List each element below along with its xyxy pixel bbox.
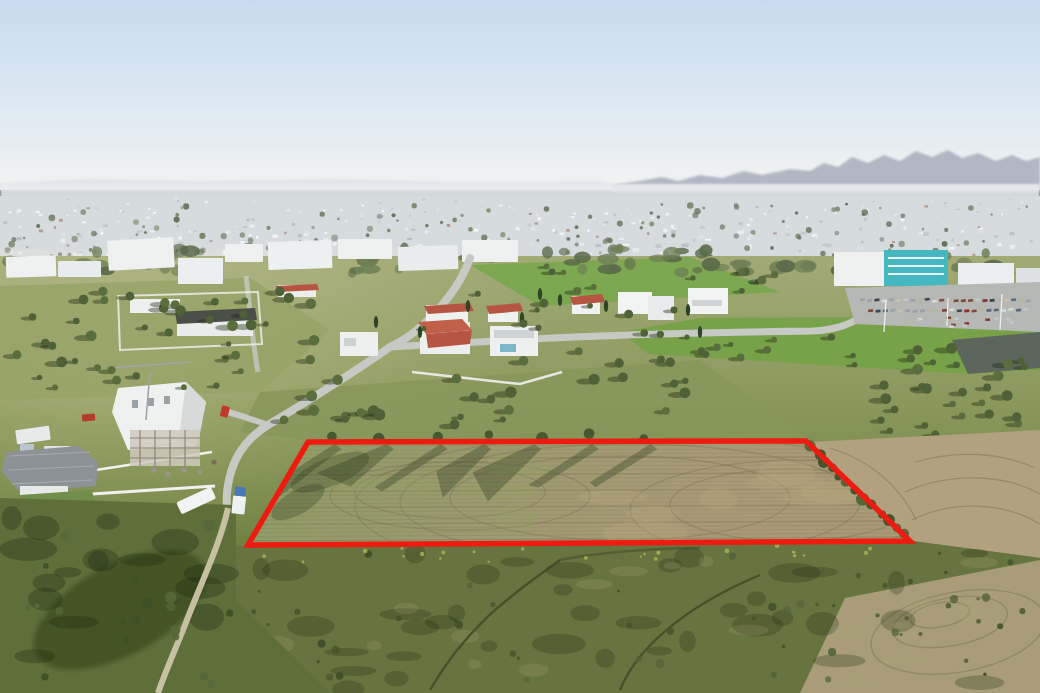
car bbox=[927, 309, 932, 312]
olive-tree bbox=[983, 384, 991, 392]
dark-mottle bbox=[595, 649, 614, 668]
car bbox=[932, 300, 937, 303]
building-speckle bbox=[835, 212, 837, 214]
yellow-bush bbox=[441, 551, 445, 555]
building-speckle bbox=[571, 216, 575, 218]
building-speckle bbox=[516, 227, 520, 230]
dark-mottle bbox=[747, 591, 766, 606]
building-speckle bbox=[188, 231, 191, 233]
building-speckle bbox=[854, 227, 858, 229]
roof-speckle bbox=[67, 245, 70, 247]
building-speckle bbox=[629, 213, 632, 215]
city-tree bbox=[649, 221, 654, 226]
building-speckle bbox=[234, 226, 238, 228]
city-tree bbox=[133, 219, 139, 225]
olive-tree bbox=[306, 299, 317, 310]
olive-tree bbox=[561, 270, 566, 275]
slope-bush bbox=[132, 616, 141, 625]
scaffolding bbox=[130, 430, 200, 466]
yellow-bush bbox=[725, 549, 730, 554]
dark-mottle bbox=[0, 538, 57, 561]
olive-tree bbox=[342, 416, 349, 423]
car bbox=[1004, 299, 1009, 302]
building-speckle bbox=[39, 214, 43, 216]
building-speckle bbox=[127, 203, 129, 204]
building-speckle bbox=[225, 230, 230, 233]
olive-tree bbox=[79, 295, 89, 305]
olive-tree bbox=[284, 293, 294, 303]
car bbox=[985, 319, 990, 321]
building-speckle bbox=[117, 220, 119, 223]
building-speckle bbox=[605, 212, 608, 214]
building-speckle bbox=[103, 225, 108, 227]
building-speckle bbox=[994, 236, 998, 238]
olive-tree bbox=[930, 359, 936, 365]
building-speckle bbox=[563, 209, 566, 210]
building-speckle bbox=[78, 206, 80, 207]
city-tree bbox=[36, 224, 40, 228]
building-speckle bbox=[944, 203, 946, 205]
olive-tree bbox=[907, 354, 915, 362]
dark-mottle bbox=[647, 646, 672, 655]
building-speckle bbox=[270, 229, 273, 231]
building-speckle bbox=[417, 244, 423, 246]
olive-tree bbox=[912, 364, 923, 375]
olive-tree bbox=[280, 416, 289, 425]
scrub-bush bbox=[667, 628, 674, 635]
building-speckle bbox=[619, 238, 624, 240]
city-tree bbox=[734, 203, 739, 208]
olive-tree bbox=[640, 329, 648, 337]
building-speckle bbox=[632, 248, 639, 252]
city-tree bbox=[588, 214, 592, 218]
olive-tree bbox=[52, 384, 58, 390]
building-speckle bbox=[409, 215, 411, 217]
tree-cluster bbox=[92, 246, 102, 257]
scrub-bush bbox=[453, 618, 457, 622]
car bbox=[957, 309, 962, 312]
dark-mottle bbox=[425, 615, 457, 630]
car bbox=[954, 318, 959, 320]
car bbox=[860, 298, 865, 301]
building-speckle bbox=[861, 241, 864, 243]
building-speckle bbox=[923, 232, 928, 236]
building-speckle bbox=[361, 212, 363, 214]
building-speckle bbox=[900, 219, 904, 222]
olive-tree bbox=[133, 372, 140, 379]
building-speckle bbox=[826, 243, 832, 247]
building-speckle bbox=[425, 230, 427, 233]
building-speckle bbox=[747, 237, 750, 240]
building-speckle bbox=[936, 239, 940, 241]
city-tree bbox=[468, 227, 473, 232]
slope-bush bbox=[204, 520, 216, 532]
roof-speckle bbox=[957, 244, 960, 246]
aerial-photo-stage bbox=[0, 0, 1040, 693]
roof-speckle bbox=[924, 205, 928, 207]
scrub-bush bbox=[950, 595, 958, 603]
olive-tree bbox=[958, 388, 967, 397]
building-speckle bbox=[978, 231, 983, 233]
olive-tree bbox=[125, 292, 134, 301]
car bbox=[1016, 309, 1021, 312]
city-tree bbox=[337, 218, 340, 221]
building-speckle bbox=[573, 213, 576, 214]
olive-tree bbox=[918, 383, 926, 391]
olive-tree bbox=[519, 356, 529, 366]
scrub-bush bbox=[636, 656, 643, 663]
olive-tree bbox=[993, 371, 1003, 381]
building-speckle bbox=[552, 229, 554, 232]
building-speckle bbox=[177, 200, 180, 202]
olive-tree bbox=[670, 379, 678, 387]
building-speckle bbox=[119, 210, 121, 212]
city-tree bbox=[91, 231, 97, 237]
scrub-bush bbox=[510, 651, 517, 658]
olive-tree bbox=[959, 413, 966, 420]
olive-tree bbox=[713, 344, 720, 351]
city-tree bbox=[692, 212, 698, 218]
city-tree bbox=[968, 205, 974, 211]
olive-tree bbox=[37, 375, 42, 380]
light-mottle bbox=[394, 602, 419, 614]
building-speckle bbox=[859, 228, 862, 231]
car bbox=[1009, 321, 1014, 323]
slope-bush bbox=[120, 620, 126, 626]
scrub-bush bbox=[317, 639, 325, 647]
tan-mottle bbox=[782, 487, 862, 506]
roof-speckle bbox=[535, 222, 538, 224]
building-speckle bbox=[560, 232, 565, 235]
building-speckle bbox=[903, 226, 906, 229]
tree-cluster bbox=[597, 254, 619, 264]
building-speckle bbox=[288, 207, 291, 208]
building-speckle bbox=[455, 201, 458, 203]
city-tree bbox=[798, 236, 802, 240]
building-speckle bbox=[148, 208, 150, 210]
olive-tree bbox=[535, 307, 540, 312]
car bbox=[942, 309, 947, 312]
scrub-bush bbox=[524, 677, 529, 682]
building-speckle bbox=[685, 201, 687, 202]
car bbox=[972, 309, 977, 312]
olive-tree bbox=[94, 364, 101, 371]
olive-tree bbox=[549, 268, 556, 275]
car bbox=[1006, 318, 1011, 320]
olive-tree bbox=[540, 299, 549, 308]
yellow-bush bbox=[420, 552, 424, 556]
scrub-bush bbox=[825, 676, 831, 682]
olive-tree bbox=[452, 374, 462, 384]
olive-tree bbox=[1002, 390, 1013, 401]
olive-tree bbox=[231, 351, 240, 360]
city-tree bbox=[922, 228, 925, 231]
dark-mottle bbox=[2, 506, 22, 530]
city-tree bbox=[366, 233, 370, 237]
building-speckle bbox=[808, 198, 810, 200]
dark-mottle bbox=[28, 588, 62, 611]
white-warehouse bbox=[834, 252, 888, 286]
building-speckle bbox=[750, 218, 753, 220]
car bbox=[946, 300, 951, 303]
light-mottle bbox=[576, 579, 613, 590]
building-speckle bbox=[801, 249, 806, 252]
dark-mottle bbox=[961, 549, 988, 558]
city-tree bbox=[862, 213, 865, 216]
slope-bush bbox=[26, 605, 32, 611]
slope-bush bbox=[226, 610, 233, 617]
car bbox=[868, 309, 873, 312]
olive-tree bbox=[702, 351, 709, 358]
olive-tree bbox=[771, 271, 778, 278]
olive-tree bbox=[211, 298, 219, 306]
light-mottle bbox=[468, 659, 481, 669]
yellow-bush bbox=[439, 557, 442, 560]
building-speckle bbox=[613, 214, 616, 217]
building-speckle bbox=[324, 232, 327, 233]
cypress-tree bbox=[558, 294, 562, 306]
building-speckle bbox=[333, 242, 337, 246]
building-speckle bbox=[377, 220, 381, 222]
scrub-bush bbox=[892, 629, 899, 636]
city-tree bbox=[649, 211, 653, 215]
building-speckle bbox=[530, 242, 535, 245]
cypress-tree bbox=[466, 300, 470, 312]
olive-tree bbox=[575, 347, 583, 355]
scrub-bush bbox=[982, 593, 990, 601]
roof-speckle bbox=[26, 246, 28, 248]
roof-speckle bbox=[209, 240, 212, 242]
building-speckle bbox=[627, 208, 628, 210]
city-tree bbox=[640, 226, 643, 229]
car bbox=[896, 299, 901, 302]
light-mottle bbox=[729, 625, 769, 636]
city-tree bbox=[23, 237, 26, 240]
olive-tree bbox=[306, 355, 315, 364]
city-tree bbox=[886, 221, 892, 227]
tree-cluster bbox=[542, 246, 553, 259]
yellow-bush bbox=[363, 549, 368, 554]
olive-tree bbox=[985, 409, 994, 418]
scrub-bush bbox=[944, 571, 948, 575]
cypress-tree bbox=[374, 316, 378, 328]
roof-speckle bbox=[892, 241, 895, 243]
building-speckle bbox=[819, 220, 823, 223]
building-speckle bbox=[298, 234, 302, 237]
building-speckle bbox=[961, 230, 964, 233]
light-mottle bbox=[664, 562, 682, 570]
building-speckle bbox=[822, 244, 825, 246]
building-speckle bbox=[82, 221, 85, 223]
car bbox=[994, 317, 999, 319]
building-speckle bbox=[801, 232, 807, 235]
tree-cluster bbox=[730, 260, 752, 268]
building-speckle bbox=[252, 201, 255, 202]
city-tree bbox=[460, 214, 463, 217]
building-speckle bbox=[137, 230, 142, 232]
olive-tree bbox=[505, 386, 517, 398]
building-speckle bbox=[1001, 213, 1003, 215]
tan-mottle bbox=[626, 506, 680, 521]
tree-cluster bbox=[794, 260, 817, 273]
scrub-bush bbox=[294, 609, 300, 615]
city-tree bbox=[617, 221, 623, 227]
dark-mottle bbox=[54, 567, 82, 578]
tree-cluster bbox=[578, 264, 588, 275]
building-speckle bbox=[177, 225, 179, 227]
tree-cluster bbox=[699, 244, 712, 256]
car bbox=[920, 309, 925, 312]
slope-bush bbox=[132, 578, 138, 584]
city-tree bbox=[744, 245, 750, 251]
yellow-bush bbox=[402, 555, 405, 558]
roof-speckle bbox=[978, 226, 980, 228]
building-speckle bbox=[99, 229, 103, 231]
car bbox=[990, 299, 995, 302]
dark-mottle bbox=[48, 616, 98, 629]
dark-mottle bbox=[955, 675, 1004, 690]
building-speckle bbox=[250, 225, 255, 228]
building-speckle bbox=[407, 238, 412, 240]
building-speckle bbox=[383, 226, 385, 227]
olive-tree bbox=[475, 291, 481, 297]
building-speckle bbox=[592, 218, 595, 219]
olive-tree bbox=[306, 390, 317, 401]
scrub-bush bbox=[326, 673, 333, 680]
pool bbox=[500, 344, 516, 352]
building-speckle bbox=[256, 236, 258, 239]
building-speckle bbox=[941, 222, 945, 224]
car bbox=[939, 299, 944, 302]
building-speckle bbox=[814, 216, 817, 218]
car bbox=[986, 309, 991, 312]
olive-tree bbox=[879, 381, 888, 390]
building-speckle bbox=[997, 243, 1001, 245]
city-tree bbox=[331, 235, 338, 242]
scrub-bush bbox=[976, 619, 981, 624]
tan-mottle bbox=[577, 490, 647, 504]
car bbox=[1023, 308, 1028, 311]
city-tree bbox=[142, 225, 145, 228]
scrub-bush bbox=[332, 646, 340, 654]
scrub-bush bbox=[899, 633, 902, 636]
building-speckle bbox=[651, 217, 655, 219]
city-tree bbox=[144, 231, 147, 234]
scrub-bush bbox=[258, 590, 261, 593]
building-speckle bbox=[816, 236, 819, 240]
olive-tree bbox=[374, 409, 386, 421]
yellow-bush bbox=[301, 561, 304, 564]
olive-tree bbox=[275, 287, 285, 297]
olive-tree bbox=[671, 307, 678, 314]
city-tree bbox=[387, 229, 391, 233]
light-mottle bbox=[367, 641, 382, 651]
olive-tree bbox=[949, 401, 955, 407]
city-tree bbox=[320, 212, 325, 217]
scrub-bush bbox=[768, 603, 776, 611]
olive-tree bbox=[309, 335, 320, 346]
building-speckle bbox=[273, 235, 278, 238]
building-speckle bbox=[17, 237, 22, 240]
city-tree bbox=[392, 213, 396, 217]
building-speckle bbox=[688, 215, 691, 217]
city-tree bbox=[890, 244, 894, 248]
roof-speckle bbox=[773, 232, 777, 234]
dark-mottle bbox=[384, 671, 408, 687]
olive-tree bbox=[587, 303, 593, 309]
roof-speckle bbox=[54, 226, 56, 229]
building-speckle bbox=[1010, 245, 1015, 249]
olive-tree bbox=[728, 342, 733, 347]
building-speckle bbox=[623, 244, 629, 246]
building-speckle bbox=[103, 218, 106, 221]
olive-tree bbox=[519, 320, 527, 328]
edge-tree bbox=[485, 431, 493, 439]
olive-tree bbox=[624, 310, 633, 319]
building-speckle bbox=[685, 243, 690, 246]
building-speckle bbox=[798, 250, 801, 253]
city-tree bbox=[575, 225, 579, 229]
city-tree bbox=[566, 237, 570, 241]
car bbox=[889, 298, 894, 301]
building-speckle bbox=[345, 220, 348, 222]
yellow-bush bbox=[643, 553, 646, 556]
tree-cluster bbox=[559, 248, 570, 256]
building-speckle bbox=[1014, 217, 1017, 218]
olive-tree bbox=[953, 361, 960, 368]
olive-tree bbox=[12, 350, 21, 359]
building-speckle bbox=[746, 224, 750, 226]
olive-tree bbox=[887, 427, 893, 433]
city-tree bbox=[367, 226, 373, 232]
building-speckle bbox=[1010, 198, 1012, 200]
building-speckle bbox=[513, 215, 515, 216]
building-speckle bbox=[287, 210, 290, 212]
city-tree bbox=[982, 240, 985, 243]
building-speckle bbox=[389, 204, 391, 206]
olive-tree bbox=[72, 358, 78, 364]
building-speckle bbox=[251, 218, 254, 220]
scrub-bush bbox=[251, 609, 256, 614]
building-speckle bbox=[663, 229, 667, 232]
building-speckle bbox=[681, 201, 684, 202]
dark-mottle bbox=[83, 548, 119, 571]
dark-mottle bbox=[500, 557, 534, 567]
olive-tree bbox=[946, 343, 957, 354]
scrub-bush bbox=[1019, 608, 1025, 614]
roof-speckle bbox=[86, 207, 89, 209]
city-tree bbox=[575, 242, 579, 246]
car bbox=[898, 309, 903, 312]
building-speckle bbox=[1030, 240, 1033, 242]
city-tree bbox=[80, 209, 86, 215]
scrub-bush bbox=[875, 613, 879, 617]
slope-bush bbox=[60, 621, 66, 627]
city-tree bbox=[964, 240, 969, 245]
city-tree bbox=[452, 218, 457, 223]
building-speckle bbox=[3, 221, 7, 224]
building-speckle bbox=[481, 200, 483, 201]
olive-tree bbox=[979, 399, 986, 406]
olive-tree bbox=[486, 395, 495, 404]
building-speckle bbox=[537, 214, 539, 216]
building-speckle bbox=[246, 219, 249, 221]
dark-mottle bbox=[720, 603, 748, 618]
car bbox=[1011, 298, 1016, 301]
building-speckle bbox=[437, 209, 439, 210]
slope-bush bbox=[61, 531, 70, 540]
scrub-bush bbox=[771, 672, 777, 678]
